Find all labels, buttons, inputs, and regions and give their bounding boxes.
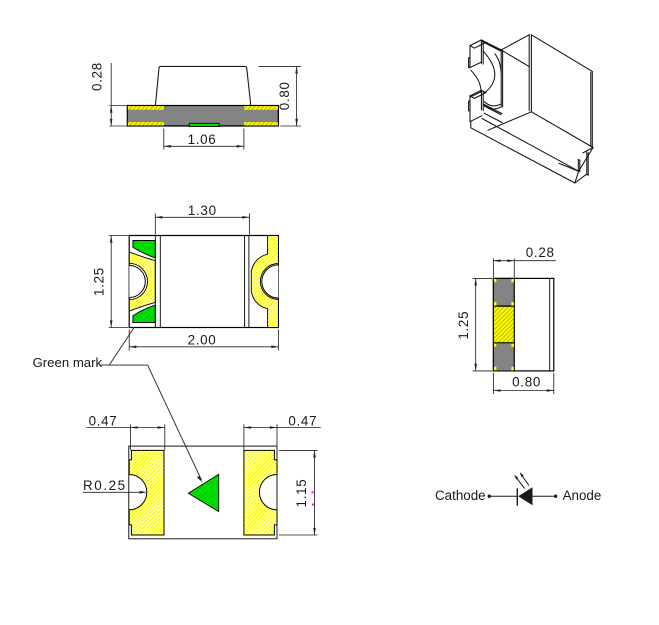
- svg-text:0.80: 0.80: [277, 81, 292, 110]
- svg-text:Anode: Anode: [563, 488, 602, 503]
- svg-text:1.06: 1.06: [188, 132, 217, 147]
- svg-text:Green mark: Green mark: [33, 355, 103, 370]
- svg-text:0.80: 0.80: [512, 374, 541, 389]
- svg-text:0.47: 0.47: [89, 413, 118, 428]
- svg-text:0.28: 0.28: [526, 245, 555, 260]
- svg-text:0.28: 0.28: [90, 62, 105, 91]
- svg-text:R0.25: R0.25: [83, 478, 127, 493]
- svg-text:1.15: 1.15: [294, 479, 309, 508]
- svg-text:1.30: 1.30: [188, 203, 217, 218]
- svg-text:0.47: 0.47: [288, 413, 317, 428]
- svg-text:2.00: 2.00: [188, 333, 217, 348]
- svg-text:1.25: 1.25: [92, 267, 107, 296]
- svg-text:Cathode: Cathode: [435, 488, 486, 503]
- svg-text:1.25: 1.25: [456, 311, 471, 340]
